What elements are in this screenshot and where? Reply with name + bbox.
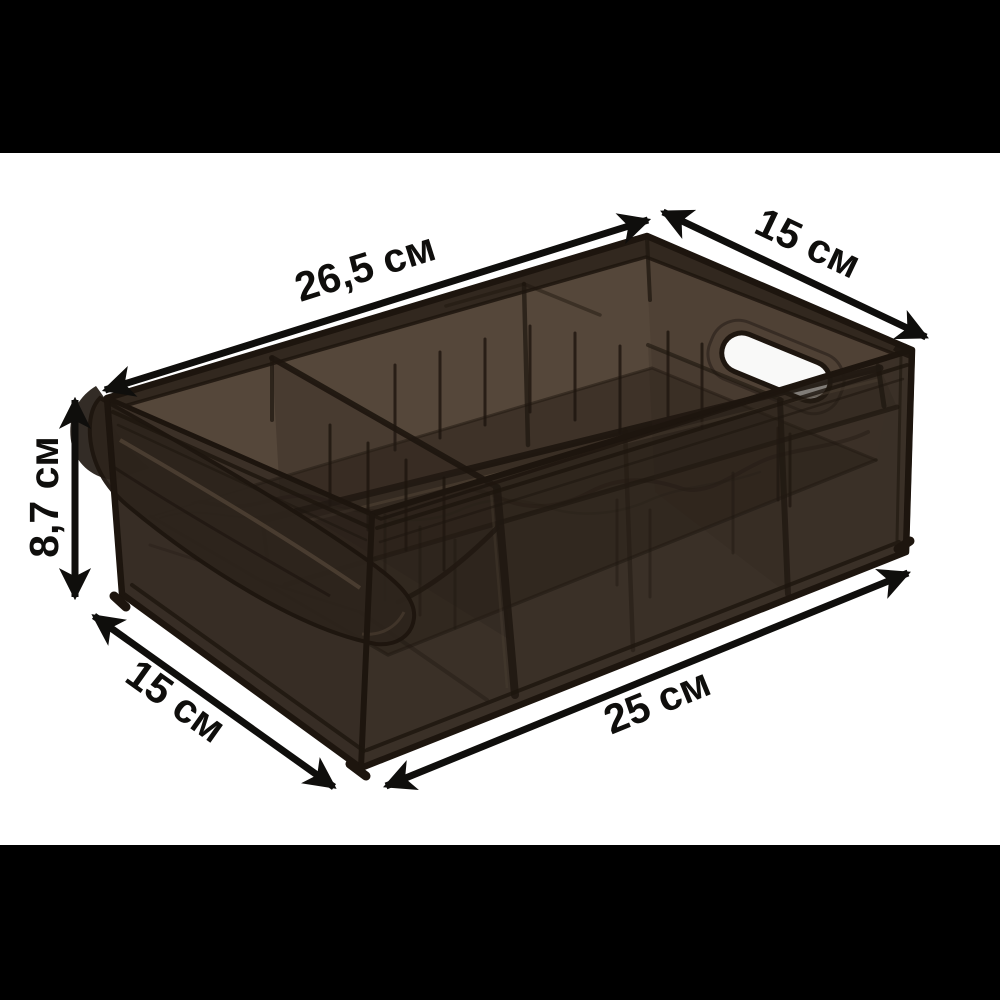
product-photo: 26,5 см 15 см 8,7 см 15 см 25 см bbox=[0, 0, 1000, 1000]
product-photo-canvas: 26,5 см 15 см 8,7 см 15 см 25 см bbox=[0, 0, 1000, 1000]
letterbox-bar-bottom bbox=[0, 845, 1000, 1000]
letterbox-bar-top bbox=[0, 0, 1000, 153]
dimension-label-side-height: 8,7 см bbox=[21, 436, 67, 558]
